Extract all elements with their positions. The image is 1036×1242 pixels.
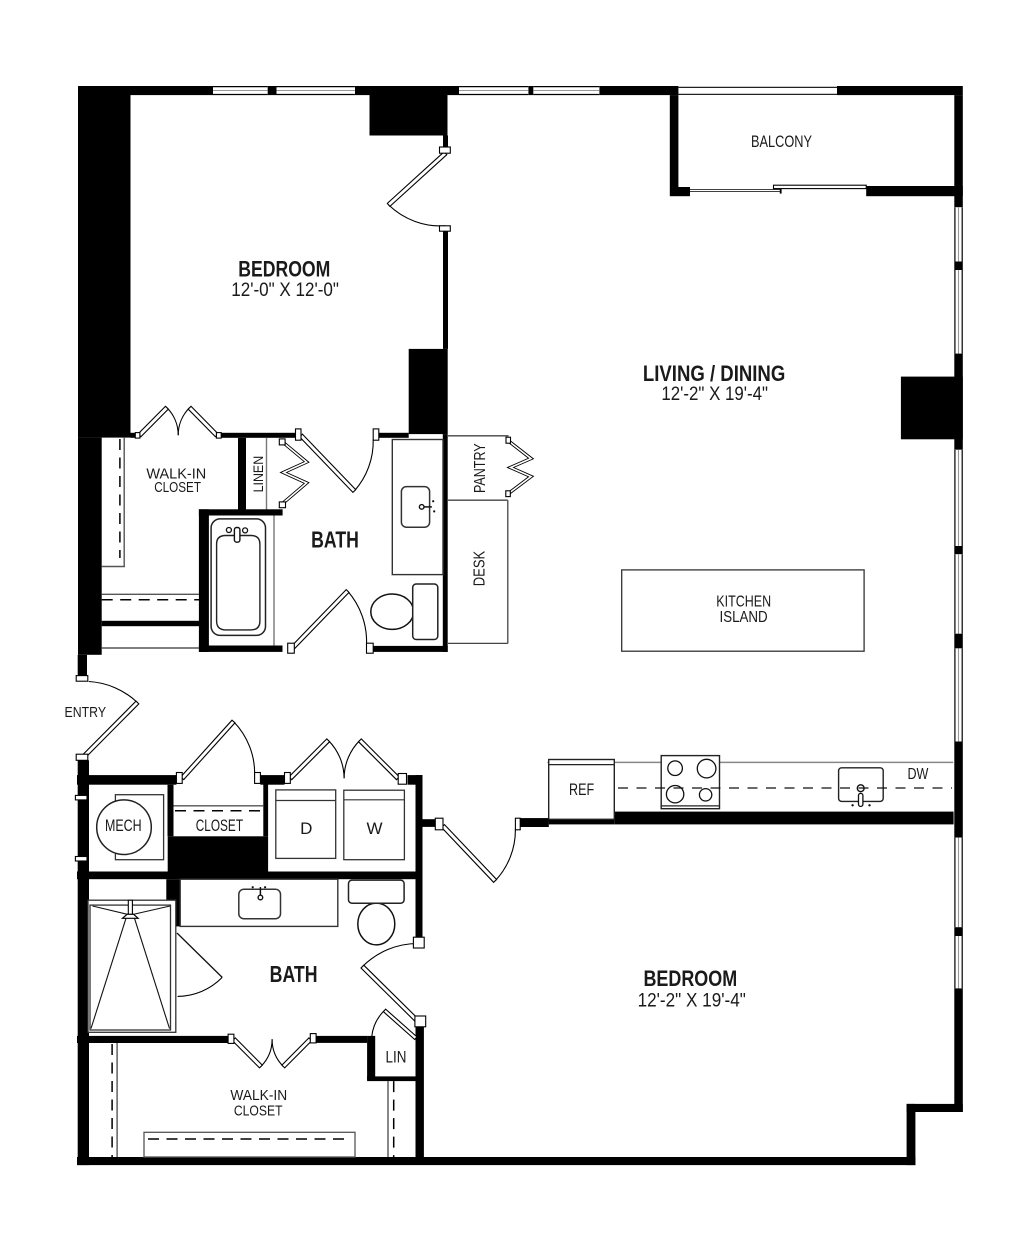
svg-text:CLOSET: CLOSET (234, 1102, 283, 1119)
svg-text:12'-0" X 12'-0": 12'-0" X 12'-0" (231, 280, 339, 301)
svg-text:D: D (300, 819, 312, 838)
svg-text:12'-2" X 19'-4": 12'-2" X 19'-4" (638, 991, 746, 1012)
svg-text:LIVING / DINING: LIVING / DINING (643, 361, 785, 386)
svg-text:LINEN: LINEN (250, 456, 266, 493)
svg-text:REF: REF (569, 781, 594, 799)
svg-text:DW: DW (907, 766, 929, 783)
svg-text:W: W (366, 819, 382, 838)
svg-text:ISLAND: ISLAND (720, 609, 768, 626)
svg-text:BEDROOM: BEDROOM (643, 966, 737, 991)
svg-text:BALCONY: BALCONY (751, 133, 812, 151)
svg-text:DESK: DESK (472, 550, 489, 586)
svg-text:12'-2" X 19'-4": 12'-2" X 19'-4" (661, 384, 768, 405)
svg-text:LIN: LIN (386, 1048, 407, 1067)
svg-text:MECH: MECH (105, 817, 142, 835)
svg-text:PANTRY: PANTRY (472, 443, 489, 493)
svg-text:CLOSET: CLOSET (196, 817, 243, 835)
svg-text:CLOSET: CLOSET (154, 479, 201, 496)
svg-text:KITCHEN: KITCHEN (716, 594, 771, 611)
svg-text:BATH: BATH (311, 527, 359, 553)
svg-text:BATH: BATH (270, 961, 318, 987)
svg-text:BEDROOM: BEDROOM (238, 257, 330, 282)
svg-text:ENTRY: ENTRY (65, 705, 107, 721)
